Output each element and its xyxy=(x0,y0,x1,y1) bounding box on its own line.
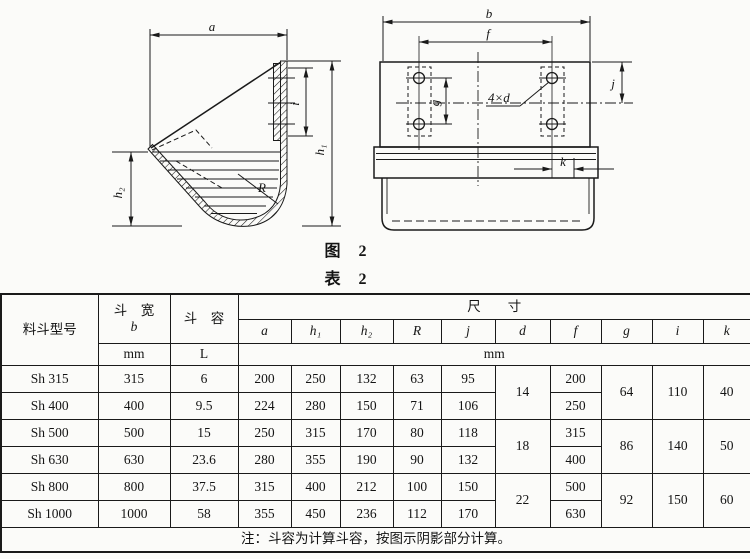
header-bucket-width-symbol: b xyxy=(99,319,170,335)
label-h1: h₁ xyxy=(312,144,327,155)
table-cell: 212 xyxy=(340,473,393,500)
label-a: a xyxy=(209,19,216,34)
label-k: k xyxy=(560,154,566,169)
figure-caption: 图 2 xyxy=(0,237,692,261)
table-cell: 1000 xyxy=(98,500,170,527)
table-cell: 280 xyxy=(238,446,291,473)
table-cell: 80 xyxy=(393,419,441,446)
table-cell: 315 xyxy=(291,419,340,446)
bucket-front-view: b f xyxy=(374,6,633,230)
label-4xd: 4×d xyxy=(488,90,510,105)
table-cell: 71 xyxy=(393,392,441,419)
header-sym-g: g xyxy=(601,319,652,343)
table-cell: 150 xyxy=(340,392,393,419)
table-cell: 112 xyxy=(393,500,441,527)
table-cell: 9.5 xyxy=(170,392,238,419)
mounting-plate xyxy=(380,62,590,147)
bucket-wall-section xyxy=(148,61,287,226)
table-cell: 250 xyxy=(550,392,601,419)
table-cell: 100 xyxy=(393,473,441,500)
header-capacity: 斗 容 xyxy=(170,294,238,343)
dim-h1 xyxy=(287,61,341,226)
table-cell: 630 xyxy=(550,500,601,527)
table-cell: 63 xyxy=(393,365,441,392)
label-h2: h₂ xyxy=(110,187,125,199)
table-cell: 500 xyxy=(550,473,601,500)
table-cell-merged-i: 110 xyxy=(652,365,703,419)
table-cell: Sh 315 xyxy=(1,365,98,392)
table-cell: 315 xyxy=(98,365,170,392)
table-cell: 106 xyxy=(441,392,495,419)
table-cell: Sh 1000 xyxy=(1,500,98,527)
header-dimensions: 尺 寸 xyxy=(238,294,750,319)
table-cell-merged-d: 14 xyxy=(495,365,550,419)
table-cell: 170 xyxy=(340,419,393,446)
figure-2-drawings: a R xyxy=(0,0,750,240)
label-b: b xyxy=(486,6,493,21)
table-cell: 450 xyxy=(291,500,340,527)
table-cell: 500 xyxy=(98,419,170,446)
table-caption: 表 2 xyxy=(0,265,692,289)
table-cell: 6 xyxy=(170,365,238,392)
table-cell: 250 xyxy=(291,365,340,392)
table-cell: 355 xyxy=(291,446,340,473)
table-cell-merged-i: 140 xyxy=(652,419,703,473)
table-cell: 315 xyxy=(238,473,291,500)
table-cell: 37.5 xyxy=(170,473,238,500)
header-model: 料斗型号 xyxy=(1,294,98,365)
unit-capacity: L xyxy=(170,343,238,365)
header-sym-d: d xyxy=(495,319,550,343)
label-i: i xyxy=(287,102,302,106)
table-cell: 200 xyxy=(550,365,601,392)
label-f: f xyxy=(486,26,492,41)
table-cell: 400 xyxy=(550,446,601,473)
unit-width: mm xyxy=(98,343,170,365)
unit-row: mm L mm xyxy=(1,343,750,365)
header-sym-h1: h₁ xyxy=(291,319,340,343)
unit-dimensions: mm xyxy=(238,343,750,365)
table-cell-merged-g: 86 xyxy=(601,419,652,473)
table-cell: 224 xyxy=(238,392,291,419)
header-bucket-width: 斗 宽 b xyxy=(98,294,170,343)
header-bucket-width-title: 斗 宽 xyxy=(114,303,155,318)
table-note: 注：斗容为计算斗容，按图示阴影部分计算。 xyxy=(1,527,750,552)
table-cell: 58 xyxy=(170,500,238,527)
table-cell: Sh 500 xyxy=(1,419,98,446)
header-sym-j: j xyxy=(441,319,495,343)
header-sym-R: R xyxy=(393,319,441,343)
table-cell-merged-k: 60 xyxy=(703,473,750,527)
opening-edge xyxy=(151,62,281,148)
table-cell-merged-g: 64 xyxy=(601,365,652,419)
table-row: Sh 500 500 15 250 315 170 80 118 18 315 … xyxy=(1,419,750,446)
table-cell: 118 xyxy=(441,419,495,446)
table-cell-merged-d: 22 xyxy=(495,473,550,527)
table-cell-merged-k: 40 xyxy=(703,365,750,419)
label-j: j xyxy=(609,76,615,91)
table-cell: 400 xyxy=(98,392,170,419)
bucket-dimension-table: 料斗型号 斗 宽 b 斗 容 尺 寸 a h₁ h₂ R j d f g i k xyxy=(0,293,750,553)
table-cell: 132 xyxy=(340,365,393,392)
table-cell: Sh 400 xyxy=(1,392,98,419)
label-R: R xyxy=(257,180,266,195)
table-row: Sh 315 315 6 200 250 132 63 95 14 200 64… xyxy=(1,365,750,392)
table-cell: 200 xyxy=(238,365,291,392)
table-cell: 15 xyxy=(170,419,238,446)
table-note-row: 注：斗容为计算斗容，按图示阴影部分计算。 xyxy=(1,527,750,552)
table-cell: 190 xyxy=(340,446,393,473)
table-cell-merged-g: 92 xyxy=(601,473,652,527)
table-cell: 23.6 xyxy=(170,446,238,473)
table-cell: 800 xyxy=(98,473,170,500)
table-cell: 315 xyxy=(550,419,601,446)
table-cell: Sh 630 xyxy=(1,446,98,473)
table-cell-merged-d: 18 xyxy=(495,419,550,473)
table-cell: 236 xyxy=(340,500,393,527)
header-sym-i: i xyxy=(652,319,703,343)
table-cell: 400 xyxy=(291,473,340,500)
table-cell: Sh 800 xyxy=(1,473,98,500)
header-sym-f: f xyxy=(550,319,601,343)
table-cell: 95 xyxy=(441,365,495,392)
table-cell: 170 xyxy=(441,500,495,527)
document-page: a R xyxy=(0,0,750,559)
table-cell: 280 xyxy=(291,392,340,419)
table-cell: 150 xyxy=(441,473,495,500)
table-cell: 630 xyxy=(98,446,170,473)
table-cell: 250 xyxy=(238,419,291,446)
table-cell: 132 xyxy=(441,446,495,473)
header-sym-h2: h₂ xyxy=(340,319,393,343)
header-sym-a: a xyxy=(238,319,291,343)
bucket-side-view: a R xyxy=(110,19,341,226)
table-row: Sh 800 800 37.5 315 400 212 100 150 22 5… xyxy=(1,473,750,500)
header-sym-k: k xyxy=(703,319,750,343)
label-g: g xyxy=(427,99,442,106)
lower-body xyxy=(382,178,594,230)
table-cell: 90 xyxy=(393,446,441,473)
table-cell-merged-k: 50 xyxy=(703,419,750,473)
table-cell-merged-i: 150 xyxy=(652,473,703,527)
table-cell: 355 xyxy=(238,500,291,527)
dim-a xyxy=(150,29,287,149)
